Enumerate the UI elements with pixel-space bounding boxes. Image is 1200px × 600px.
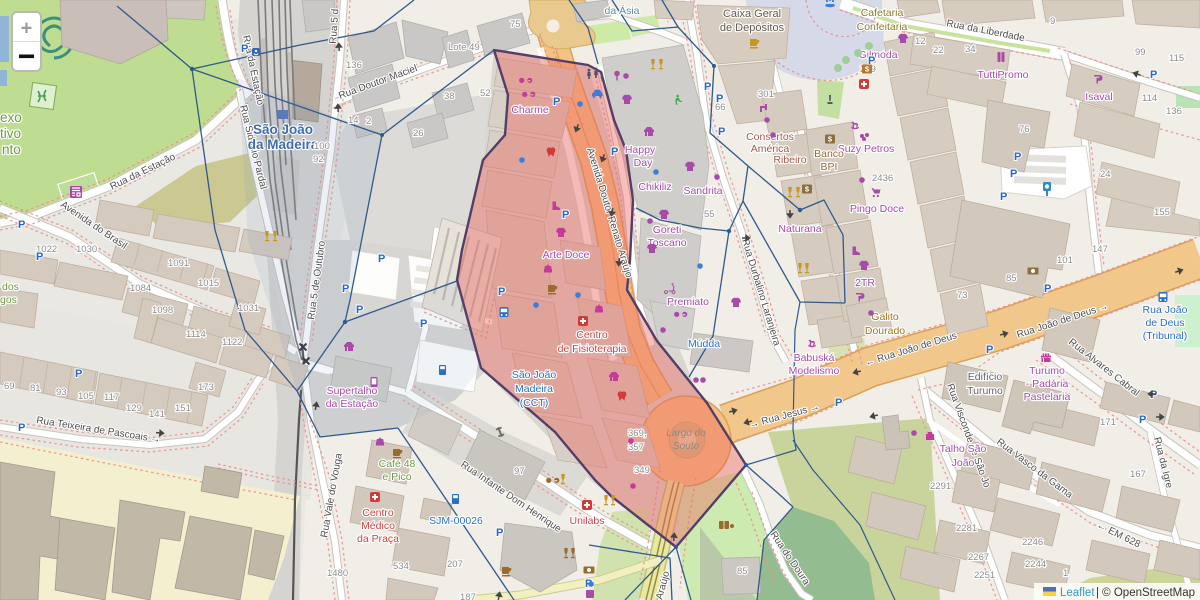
svg-text:Turumo: Turumo (967, 385, 1003, 397)
svg-text:301: 301 (758, 89, 774, 100)
svg-text:de Deus: de Deus (1145, 317, 1184, 329)
svg-text:Médico: Médico (361, 520, 395, 532)
svg-text:73: 73 (957, 290, 968, 301)
svg-text:Day: Day (634, 157, 653, 169)
svg-text:Largo do: Largo do (666, 428, 706, 439)
svg-text:P: P (553, 96, 560, 108)
svg-text:151: 151 (175, 403, 191, 414)
svg-text:P: P (611, 146, 618, 158)
svg-text:P: P (562, 209, 569, 221)
svg-text:9: 9 (1050, 16, 1055, 27)
svg-text:Gilmoda: Gilmoda (858, 49, 897, 61)
svg-text:100: 100 (314, 141, 330, 152)
svg-text:1122: 1122 (222, 337, 242, 348)
svg-text:97: 97 (514, 466, 525, 477)
svg-text:dos: dos (2, 281, 19, 293)
svg-text:tivo: tivo (0, 126, 21, 141)
svg-text:155: 155 (1154, 207, 1170, 218)
svg-text:Premiato: Premiato (667, 296, 709, 308)
svg-text:P: P (1000, 191, 1007, 203)
svg-text:38: 38 (444, 91, 455, 102)
svg-text:(CCT): (CCT) (520, 397, 549, 409)
svg-text:- Padária: - Padária (1026, 378, 1069, 390)
svg-text:Múdda: Múdda (688, 338, 720, 350)
svg-text:exo: exo (0, 110, 22, 125)
svg-text:P: P (498, 286, 505, 298)
svg-text:2TR: 2TR (855, 277, 875, 289)
svg-text:| © OpenStreetMap: | © OpenStreetMap (1096, 587, 1195, 599)
svg-text:Lote 49: Lote 49 (448, 42, 480, 53)
svg-text:81: 81 (30, 383, 41, 394)
svg-text:2291: 2291 (930, 481, 951, 492)
svg-text:Cafetaria: Cafetaria (861, 7, 904, 19)
svg-text:da Estação: da Estação (326, 398, 379, 410)
svg-text:Talho São: Talho São (940, 443, 987, 455)
svg-text:P: P (1014, 151, 1021, 163)
svg-text:P: P (835, 397, 842, 409)
svg-text:24: 24 (1100, 169, 1111, 180)
svg-text:Charme: Charme (511, 104, 549, 116)
svg-text:Goreti: Goreti (653, 224, 682, 236)
svg-text:2436: 2436 (872, 173, 893, 184)
svg-text:207: 207 (447, 559, 463, 570)
svg-text:Suzy Petros: Suzy Petros (838, 143, 895, 155)
svg-text:2251: 2251 (974, 570, 995, 581)
svg-text:Sandrita: Sandrita (683, 185, 722, 197)
svg-text:34: 34 (965, 44, 976, 55)
svg-text:1030: 1030 (76, 244, 97, 255)
svg-text:75: 75 (510, 19, 521, 30)
svg-text:São João: São João (512, 369, 557, 381)
svg-text:Pastelaria: Pastelaria (1024, 391, 1071, 403)
svg-text:da Madeira: da Madeira (248, 137, 319, 152)
svg-text:173: 173 (198, 382, 214, 393)
svg-text:114: 114 (1142, 93, 1157, 104)
svg-text:Naturana: Naturana (778, 223, 821, 235)
svg-text:(Tribunal): (Tribunal) (1143, 330, 1188, 342)
svg-text:Rua João: Rua João (1143, 304, 1188, 316)
svg-text:147: 147 (1092, 244, 1108, 255)
svg-text:P: P (704, 81, 711, 93)
svg-text:1031: 1031 (238, 303, 259, 314)
svg-text:117: 117 (104, 392, 119, 403)
svg-text:2244: 2244 (1025, 559, 1046, 570)
svg-text:João: João (952, 457, 975, 469)
svg-text:85: 85 (1006, 273, 1017, 284)
svg-text:Turumo: Turumo (1029, 365, 1065, 377)
svg-text:P: P (378, 253, 385, 265)
svg-text:2267: 2267 (968, 552, 989, 563)
svg-text:P: P (18, 422, 25, 434)
svg-text:Dourado: Dourado (865, 325, 905, 337)
svg-text:12: 12 (915, 36, 926, 47)
svg-text:Babuská: Babuská (794, 352, 835, 364)
svg-text:Arte Doce: Arte Doce (543, 249, 590, 261)
svg-text:93: 93 (56, 387, 67, 398)
svg-text:129: 129 (126, 403, 142, 414)
svg-text:369,: 369, (628, 428, 647, 439)
svg-text:de Fisioterapia: de Fisioterapia (558, 343, 627, 355)
svg-text:P: P (1010, 168, 1017, 180)
svg-text:76: 76 (1019, 124, 1030, 135)
svg-text:1114: 1114 (186, 329, 206, 340)
svg-text:Leaflet: Leaflet (1060, 587, 1095, 599)
svg-text:Pingo Doce: Pingo Doce (850, 203, 904, 215)
svg-text:P: P (356, 304, 363, 316)
svg-text:P: P (18, 219, 25, 231)
svg-text:141: 141 (149, 409, 165, 420)
svg-text:14: 14 (348, 115, 359, 126)
svg-text:Edifício: Edifício (968, 371, 1003, 383)
svg-text:P: P (496, 527, 503, 539)
svg-text:Centro: Centro (362, 507, 394, 519)
svg-text:115: 115 (1169, 53, 1184, 64)
svg-text:Madeira: Madeira (515, 383, 553, 395)
svg-text:187: 187 (460, 592, 476, 600)
svg-text:92: 92 (313, 154, 324, 165)
svg-text:Banco: Banco (814, 148, 844, 160)
svg-text:P: P (716, 93, 723, 105)
svg-text:P: P (718, 126, 725, 138)
svg-text:349: 349 (634, 465, 650, 476)
svg-text:136: 136 (346, 60, 362, 71)
svg-text:Modelismo: Modelismo (789, 365, 840, 377)
svg-text:171: 171 (1100, 417, 1116, 428)
svg-text:534: 534 (393, 561, 409, 572)
svg-text:Supertalho: Supertalho (327, 385, 378, 397)
svg-text:Café 48: Café 48 (379, 458, 416, 470)
svg-text:SJM-00026: SJM-00026 (429, 515, 483, 527)
svg-text:101: 101 (1057, 255, 1073, 266)
svg-text:1: 1 (1063, 568, 1068, 579)
svg-text:Souto: Souto (673, 441, 700, 452)
svg-text:167: 167 (1130, 469, 1146, 480)
svg-text:1091: 1091 (168, 258, 189, 269)
svg-text:gos: gos (0, 294, 17, 306)
svg-text:P: P (342, 283, 349, 295)
svg-text:2246: 2246 (1022, 537, 1043, 548)
svg-text:1015: 1015 (198, 278, 219, 289)
svg-text:55: 55 (704, 209, 715, 220)
svg-text:Happy: Happy (625, 144, 656, 156)
svg-text:1480: 1480 (327, 568, 348, 579)
svg-text:Consertos: Consertos (746, 131, 794, 143)
svg-text:da Praça: da Praça (357, 533, 399, 545)
svg-text:Chikiliz: Chikiliz (638, 181, 671, 193)
svg-text:52: 52 (480, 88, 491, 99)
svg-text:P: P (1139, 414, 1146, 426)
svg-text:105: 105 (78, 391, 94, 402)
svg-text:85: 85 (737, 566, 748, 577)
svg-text:22: 22 (933, 45, 944, 56)
svg-text:nto: nto (2, 142, 21, 157)
svg-text:e Pico: e Pico (382, 471, 411, 483)
svg-text:P: P (75, 368, 82, 380)
svg-text:São João: São João (253, 122, 313, 137)
svg-text:Isaval: Isaval (1085, 91, 1112, 103)
svg-text:Ribeiro: Ribeiro (773, 154, 806, 166)
svg-text:P: P (986, 344, 993, 356)
svg-text:1084: 1084 (130, 283, 151, 294)
svg-text:2: 2 (366, 116, 371, 127)
svg-text:P: P (241, 43, 248, 55)
svg-text:P: P (36, 251, 43, 263)
svg-text:BPI: BPI (821, 161, 838, 173)
svg-text:P: P (1150, 69, 1157, 81)
svg-text:Centro: Centro (576, 329, 608, 341)
svg-text:de Depósitos: de Depósitos (720, 22, 785, 34)
svg-text:69: 69 (4, 381, 15, 392)
svg-text:P: P (1044, 283, 1051, 295)
svg-text:Caixa Geral: Caixa Geral (723, 8, 781, 20)
svg-text:Unilabs: Unilabs (569, 515, 604, 527)
svg-text:da Ásia: da Ásia (604, 4, 639, 17)
svg-text:136: 136 (1166, 106, 1182, 117)
svg-text:99: 99 (1135, 47, 1146, 58)
svg-text:Confeitaria: Confeitaria (857, 21, 908, 33)
svg-text:P: P (420, 318, 427, 330)
svg-text:TuttiPromo: TuttiPromo (978, 69, 1029, 81)
svg-text:2281: 2281 (956, 523, 977, 534)
svg-text:1098: 1098 (152, 305, 173, 316)
svg-text:+: + (21, 18, 33, 40)
svg-text:Galito: Galito (871, 311, 899, 323)
svg-text:26: 26 (413, 128, 424, 139)
